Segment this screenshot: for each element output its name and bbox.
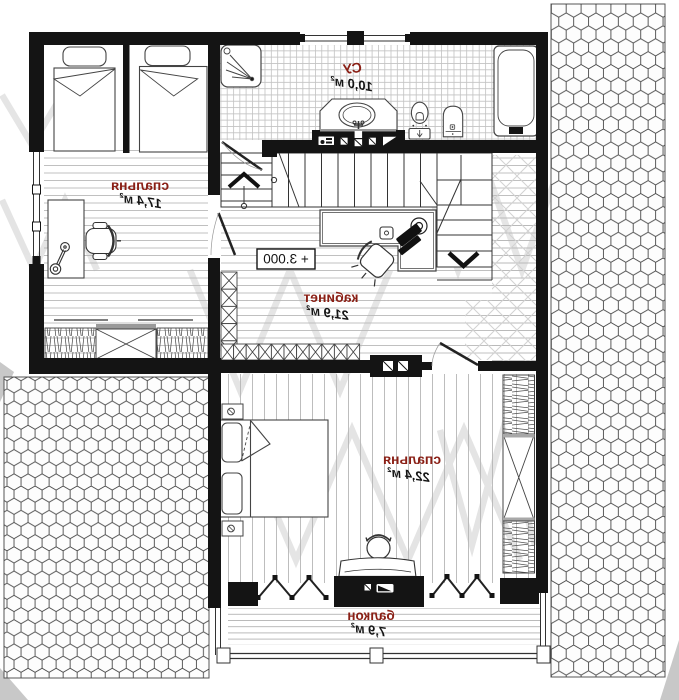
svg-text:+ 3.000: + 3.000	[263, 252, 308, 267]
svg-text:спальня: спальня	[111, 177, 169, 193]
